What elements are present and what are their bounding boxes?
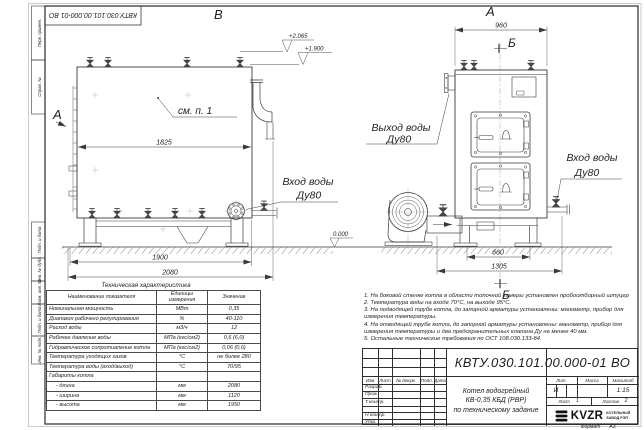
col-sign: Подп.: [420, 376, 434, 384]
see-detail-note: см. п. 1: [178, 106, 212, 117]
table-row: Температура уходящих газов°Сне более 280: [47, 353, 261, 363]
elevation-2065: +2.065: [240, 34, 314, 52]
kvzr-icon: [555, 410, 568, 422]
elevation-1900: +1.900: [250, 47, 332, 65]
col-header: Наименование показателя: [47, 291, 157, 305]
company-logo: KVZR КОТЕЛЬНЫЙ ЗАВОД РЭП: [546, 405, 639, 426]
svg-text:1305: 1305: [491, 264, 507, 271]
row-label: Н.контр.: [363, 412, 394, 419]
col-header: Значение: [208, 291, 261, 305]
table-row: Температура воды (вход/выход)°С70/95: [47, 362, 261, 372]
boiler-side-view: В см. п. 1 1825 1900 20: [52, 7, 338, 281]
upper-door: [471, 112, 530, 157]
col-date: Дата: [434, 376, 446, 384]
side-supports: [79, 218, 248, 246]
blower-fan: [385, 189, 432, 249]
inlet-water-label-side: Вход воды Ду80: [246, 176, 338, 210]
boiler-front-view: А Б 960: [366, 4, 622, 302]
row-label: Пров.: [363, 391, 394, 398]
doc-number: КВТУ.030.101.00.000-01 ВО: [446, 349, 639, 376]
table-row: - ширинамм1120: [47, 391, 261, 401]
lit-value: И: [546, 384, 566, 397]
table-row: Гидравлическое сопротивление котлаМПа (к…: [47, 343, 261, 353]
table-row: Диапазон рабочего регулирования%40-110: [47, 314, 261, 324]
row-label: Утв.: [363, 419, 394, 426]
svg-text:Вход воды: Вход воды: [567, 152, 618, 164]
row-label: Т.контр.: [363, 398, 394, 406]
table-row: Рабочее давление водыМПа (кгс/см2)0,6 (6…: [47, 333, 261, 343]
brand-name: KVZR: [571, 410, 604, 422]
title-block: КВТУ.030.101.00.000-01 ВО Изм. Лист № до…: [362, 348, 638, 425]
row-label: Разраб.: [363, 384, 394, 391]
fan-duct: [427, 205, 462, 233]
note-line: измерения температуры и два предохраните…: [364, 329, 640, 336]
svg-text:Ду80: Ду80: [386, 134, 412, 146]
inlet-pipe-front: [547, 197, 570, 215]
lower-door: [471, 163, 530, 210]
view-b-label: В: [214, 7, 223, 22]
margin-cell-label: Справ. №: [37, 77, 42, 97]
svg-text:Вход воды: Вход воды: [283, 176, 334, 188]
svg-text:1825: 1825: [156, 140, 172, 147]
lit-header: Лит.: [546, 376, 577, 384]
note-line: 3. На подводящей трубе котла, до запорно…: [364, 307, 640, 314]
inlet-water-label-front: Вход воды Ду80: [556, 152, 622, 205]
top-stamp-number: КВТУ.030.101.00.000-01 ВО: [49, 11, 137, 20]
note-line: измерения температуры.: [364, 314, 640, 321]
sheet-cell: Лист1: [546, 397, 591, 405]
note-line: 5. Остальные технические требования по О…: [364, 336, 640, 343]
note-line: 4. На отводящей трубе котла, до запорной…: [364, 322, 640, 329]
table-row: Расход водым3/ч12: [47, 324, 261, 334]
margin-cell-label: Подп. и дата: [37, 226, 42, 254]
margin-cell-label: Инв. № дубл.: [37, 256, 42, 282]
svg-text:2080: 2080: [161, 270, 178, 277]
spec-table-title: Техническая характеристика: [46, 282, 246, 289]
spec-table: Наименование показателя Единицы измерени…: [46, 290, 261, 411]
table-row: - высотамм1950: [47, 401, 261, 411]
product-title: Котел водогрейный КВ-0,35 КБД (РВР) по т…: [446, 376, 546, 426]
note-line: 1. На боковой стенке котла в области топ…: [364, 293, 640, 300]
col-header: Единицы измерения: [157, 291, 208, 305]
svg-text:+1.900: +1.900: [305, 47, 324, 53]
spec-table-block: Техническая характеристика Наименование …: [46, 282, 246, 411]
scale-header: Масштаб: [607, 376, 639, 384]
svg-text:+2.065: +2.065: [289, 34, 308, 40]
technical-notes: 1. На боковой стенке котла в области топ…: [364, 293, 640, 343]
margin-cell-label: Взам. инв. №: [37, 279, 42, 306]
mass-header: Масса: [577, 376, 607, 384]
margin-cell-label: Подп. и дата: [37, 306, 42, 334]
drawing-sheet: КВТУ.030.101.00.000-01 ВО Перв. примен. …: [0, 0, 644, 430]
svg-text:Ду80: Ду80: [296, 190, 322, 202]
outlet-flange-icon: [445, 74, 456, 93]
outlet-water-label: Выход воды Ду80: [366, 94, 449, 146]
svg-text:Б: Б: [508, 36, 516, 50]
elevation-zero: 0.000: [330, 232, 353, 247]
outlet-pipework-side: [250, 80, 275, 139]
dim-960: 960: [455, 23, 547, 67]
scale-value: 1:15: [607, 384, 639, 397]
dim-1825: 1825: [78, 140, 251, 148]
product-line: по техническому задание: [453, 406, 538, 415]
table-row: - длинамм2080: [47, 381, 261, 391]
section-b-top: Б: [494, 36, 516, 53]
col-doc: № докум.: [392, 376, 420, 384]
margin-cell-label: Перв. примен.: [37, 19, 42, 48]
table-row: Номинальная мощностьМВт0,35: [47, 305, 261, 315]
svg-text:Ду80: Ду80: [574, 167, 600, 179]
svg-text:960: 960: [495, 23, 507, 30]
table-row: Габариты котла: [47, 372, 261, 382]
col-list: Лист: [378, 376, 392, 384]
brand-sub-line: ЗАВОД РЭП: [606, 416, 630, 420]
svg-text:0.000: 0.000: [333, 232, 349, 238]
format-note: ФорматА3: [556, 424, 640, 430]
product-line: КВ-0,35 КБД (РВР): [466, 396, 527, 405]
dim-1305: 1305: [437, 216, 562, 275]
arrow-a-label: А: [52, 107, 62, 122]
front-supports: [454, 218, 541, 246]
col-izm: Изм.: [363, 376, 378, 384]
sheets-cell: Листов2: [591, 397, 639, 405]
svg-text:1900: 1900: [152, 255, 168, 262]
margin-cell-label: Инв. № подл.: [37, 337, 42, 364]
product-line: Котел водогрейный: [463, 387, 530, 396]
svg-text:Выход воды: Выход воды: [371, 122, 430, 134]
view-a-label: А: [485, 4, 495, 19]
